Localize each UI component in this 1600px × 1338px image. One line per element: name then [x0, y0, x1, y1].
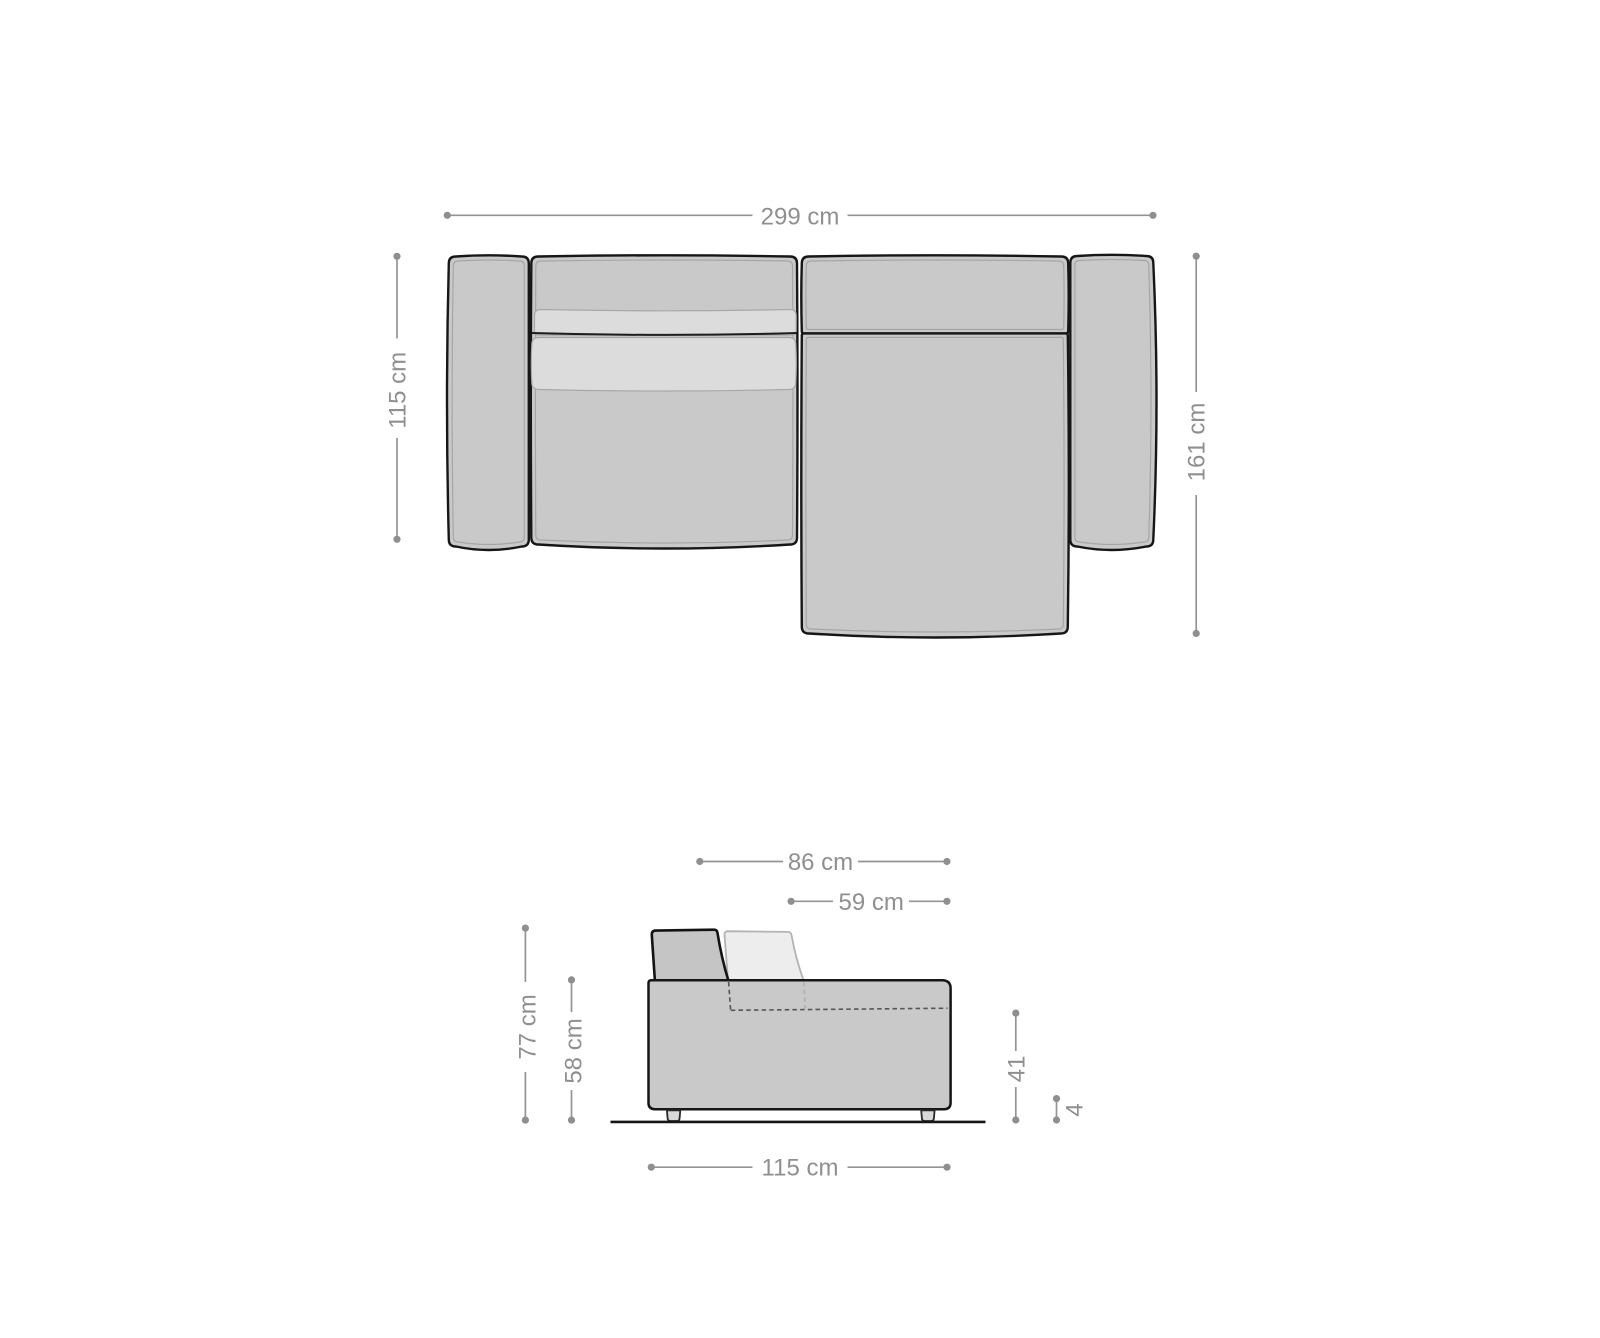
svg-text:115 cm: 115 cm	[385, 352, 412, 429]
svg-text:86 cm: 86 cm	[788, 849, 853, 876]
svg-text:4: 4	[1061, 1103, 1088, 1116]
svg-text:77 cm: 77 cm	[514, 994, 541, 1059]
svg-text:161 cm: 161 cm	[1184, 403, 1211, 482]
svg-text:299 cm: 299 cm	[761, 204, 840, 231]
svg-text:58 cm: 58 cm	[561, 1018, 588, 1083]
svg-text:41: 41	[1003, 1056, 1030, 1083]
svg-text:59 cm: 59 cm	[839, 889, 904, 916]
svg-text:115 cm: 115 cm	[762, 1155, 839, 1182]
